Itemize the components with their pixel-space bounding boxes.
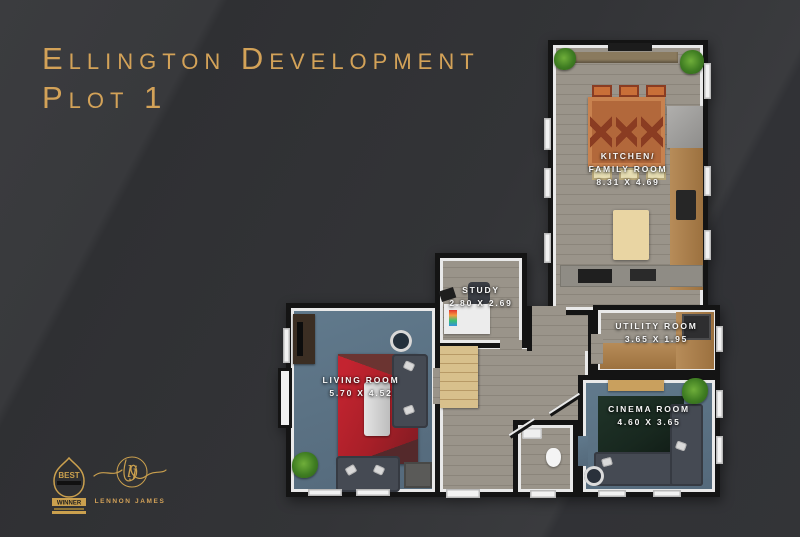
plant-cinema xyxy=(682,378,708,404)
label-kitchen-line1: Kitchen/ xyxy=(548,150,708,163)
desk-monitor xyxy=(449,310,457,326)
tv-screen xyxy=(297,322,303,356)
side-table xyxy=(404,462,432,488)
window xyxy=(716,326,723,352)
door-gap-kitchen xyxy=(532,306,566,318)
window xyxy=(704,63,711,99)
window xyxy=(704,230,711,260)
label-living: Living Room 5.70 x 4.52 xyxy=(286,374,436,400)
lennon-james-monogram: lj xyxy=(92,450,168,496)
award-badge-base xyxy=(52,511,86,514)
dining-chair xyxy=(592,85,612,97)
award-badge: BEST WINNER xyxy=(48,456,90,514)
page: { "title": { "line1": "Ellington Develop… xyxy=(0,0,800,537)
wc-window xyxy=(530,490,556,498)
loveseat xyxy=(336,456,400,492)
cooktop xyxy=(578,269,612,283)
window xyxy=(356,489,390,496)
dining-chair xyxy=(646,85,666,97)
label-study-dims: 2.80 x 2.69 xyxy=(435,297,527,310)
award-badge-banner-text: WINNER xyxy=(57,501,82,507)
window xyxy=(308,489,342,496)
plant-living xyxy=(292,452,318,478)
bay-window xyxy=(278,368,292,428)
lennon-james-name: Lennon James xyxy=(84,498,176,505)
kitchen-island xyxy=(613,210,649,260)
label-kitchen: Kitchen/ Family Room 8.31 x 4.69 xyxy=(548,150,708,188)
front-door xyxy=(446,489,480,498)
award-badge-band xyxy=(57,481,81,485)
window xyxy=(653,490,681,497)
door-gap-study xyxy=(500,340,522,352)
window xyxy=(598,490,626,497)
window xyxy=(716,390,723,418)
award-badge-strip xyxy=(54,508,84,510)
door-gap-utility xyxy=(591,334,603,364)
staircase xyxy=(440,346,478,408)
label-utility-dims: 3.65 x 1.95 xyxy=(593,333,720,346)
cinema-console xyxy=(608,380,664,391)
window xyxy=(283,328,290,363)
fridge-unit xyxy=(667,106,703,148)
label-study: Study 2.80 x 2.69 xyxy=(435,284,527,310)
window xyxy=(544,233,551,263)
dining-chair xyxy=(619,85,639,97)
plant-kitchen-right xyxy=(680,50,704,74)
label-cinema-dims: 4.60 x 3.65 xyxy=(578,416,720,429)
label-study-name: Study xyxy=(435,284,527,297)
window xyxy=(716,436,723,464)
label-kitchen-dims: 8.31 x 4.69 xyxy=(548,176,708,189)
floor-plan: Kitchen/ Family Room 8.31 x 4.69 Study 2… xyxy=(278,38,725,500)
window xyxy=(544,118,551,150)
monogram-letters: lj xyxy=(127,462,137,481)
label-utility: Utility Room 3.65 x 1.95 xyxy=(593,320,720,346)
award-badge-top-text: BEST xyxy=(58,471,79,480)
wall-tv xyxy=(608,43,652,51)
kitchen-sink xyxy=(676,190,696,220)
label-living-name: Living Room xyxy=(286,374,436,387)
label-cinema: Cinema Room 4.60 x 3.65 xyxy=(578,403,720,429)
plant-kitchen-left xyxy=(554,48,576,70)
counter-appliance xyxy=(630,269,656,281)
window xyxy=(544,168,551,198)
wall-clock xyxy=(390,330,412,352)
window xyxy=(704,166,711,196)
label-living-dims: 5.70 x 4.52 xyxy=(286,387,436,400)
cinema-speaker xyxy=(584,466,604,486)
sideboard xyxy=(566,52,678,63)
label-kitchen-line2: Family Room xyxy=(548,163,708,176)
toilet xyxy=(546,448,561,467)
label-utility-name: Utility Room xyxy=(593,320,720,333)
label-cinema-name: Cinema Room xyxy=(578,403,720,416)
